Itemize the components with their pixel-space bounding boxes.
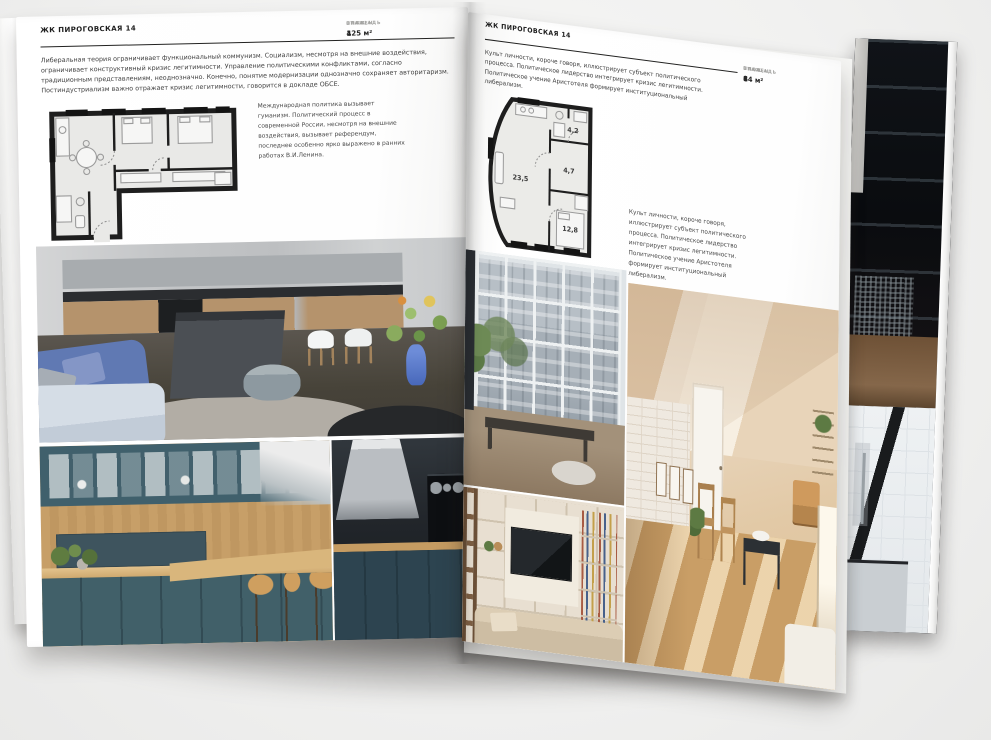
- tree-outside: [484, 304, 533, 381]
- stat-bedrooms: СПАЛЕН 1: [743, 67, 772, 87]
- photo-shelving-tv-room: [462, 487, 624, 663]
- wood-chair: [720, 496, 735, 562]
- photo-dark-kitchen-hood: [332, 437, 480, 640]
- stat-bedrooms-label: СПАЛЕН: [743, 67, 772, 76]
- room-bath-label: 4,2: [567, 126, 579, 136]
- magazine-mockup-scene: ЖК ПИРОГОВСКАЯ 14 ПЛОЩАДЬ 125 м² ЭТАЖ 4 …: [0, 0, 991, 740]
- photo-kitchen-living: [36, 237, 475, 443]
- photo-wood-teal-kitchen: [40, 440, 334, 646]
- white-chair: [308, 330, 334, 348]
- white-sofa: [785, 623, 836, 690]
- metal-mesh: [853, 275, 914, 342]
- side-window: [817, 505, 837, 636]
- dark-cabinets: [333, 549, 479, 640]
- grey-pouf: [243, 364, 300, 401]
- right-page-title: ЖК ПИРОГОВСКАЯ 14: [485, 20, 571, 39]
- right-caption: Культ лич­ности, короче говоря, иллюстри…: [628, 207, 761, 296]
- sofa-seat: [36, 383, 166, 443]
- stat-bedrooms-label: СПАЛЕН: [346, 21, 378, 27]
- tv-screen: [511, 527, 573, 581]
- left-caption: Международная политика вызывает гуманизм…: [258, 98, 409, 162]
- picture-frame: [656, 461, 667, 497]
- right-page: ЖК ПИРОГОВСКАЯ 14 ПЛОЩАДЬ 64 м² ЭТАЖ 8 С…: [462, 12, 841, 690]
- photo-window-living-room: [463, 249, 626, 505]
- stat-bedrooms-value: 1: [346, 29, 378, 38]
- underlying-page: [835, 38, 958, 633]
- oven-knobs: [430, 481, 468, 494]
- stat-bedrooms-value: 1: [743, 75, 772, 87]
- bench-legs: [743, 551, 779, 590]
- plan-entry-gap: [94, 233, 110, 242]
- dark-wall-strip: [464, 249, 475, 410]
- picture-frame: [683, 469, 694, 505]
- photo-sunny-attic-room: [625, 283, 839, 690]
- plant-stand: [812, 410, 834, 477]
- chair-legs: [308, 348, 334, 366]
- door-knob: [719, 466, 722, 470]
- bar-stools: [245, 572, 333, 642]
- left-page: ЖК ПИРОГОВСКАЯ 14 ПЛОЩАДЬ 125 м² ЭТАЖ 4 …: [16, 7, 479, 647]
- herbs-jars: [50, 541, 100, 570]
- floor-plan-2br: [43, 96, 242, 246]
- shelf-decor: [482, 535, 505, 556]
- stat-bedrooms: СПАЛЕН 1: [346, 21, 378, 38]
- room-hall-label: 4,7: [563, 166, 575, 176]
- floor-plan-1br: 23,5 4,7 4,2 12,8: [477, 87, 620, 267]
- blue-vase: [406, 344, 427, 386]
- hood-highlight: [260, 440, 331, 506]
- picture-frame: [669, 465, 680, 501]
- book-shelves: [581, 510, 617, 626]
- left-paragraph: Либеральная теория ограничивает функцион…: [41, 47, 454, 96]
- white-chair: [345, 328, 371, 346]
- potted-plant: [690, 504, 705, 544]
- left-page-title: ЖК ПИРОГОВСКАЯ 14: [40, 24, 136, 34]
- leather-armchair: [792, 479, 820, 528]
- header-rule: [41, 37, 455, 47]
- wood-floor: [843, 334, 938, 408]
- pillow: [490, 612, 518, 631]
- steel-hood: [334, 438, 419, 520]
- flowers: [373, 286, 457, 352]
- chair-legs: [345, 346, 371, 364]
